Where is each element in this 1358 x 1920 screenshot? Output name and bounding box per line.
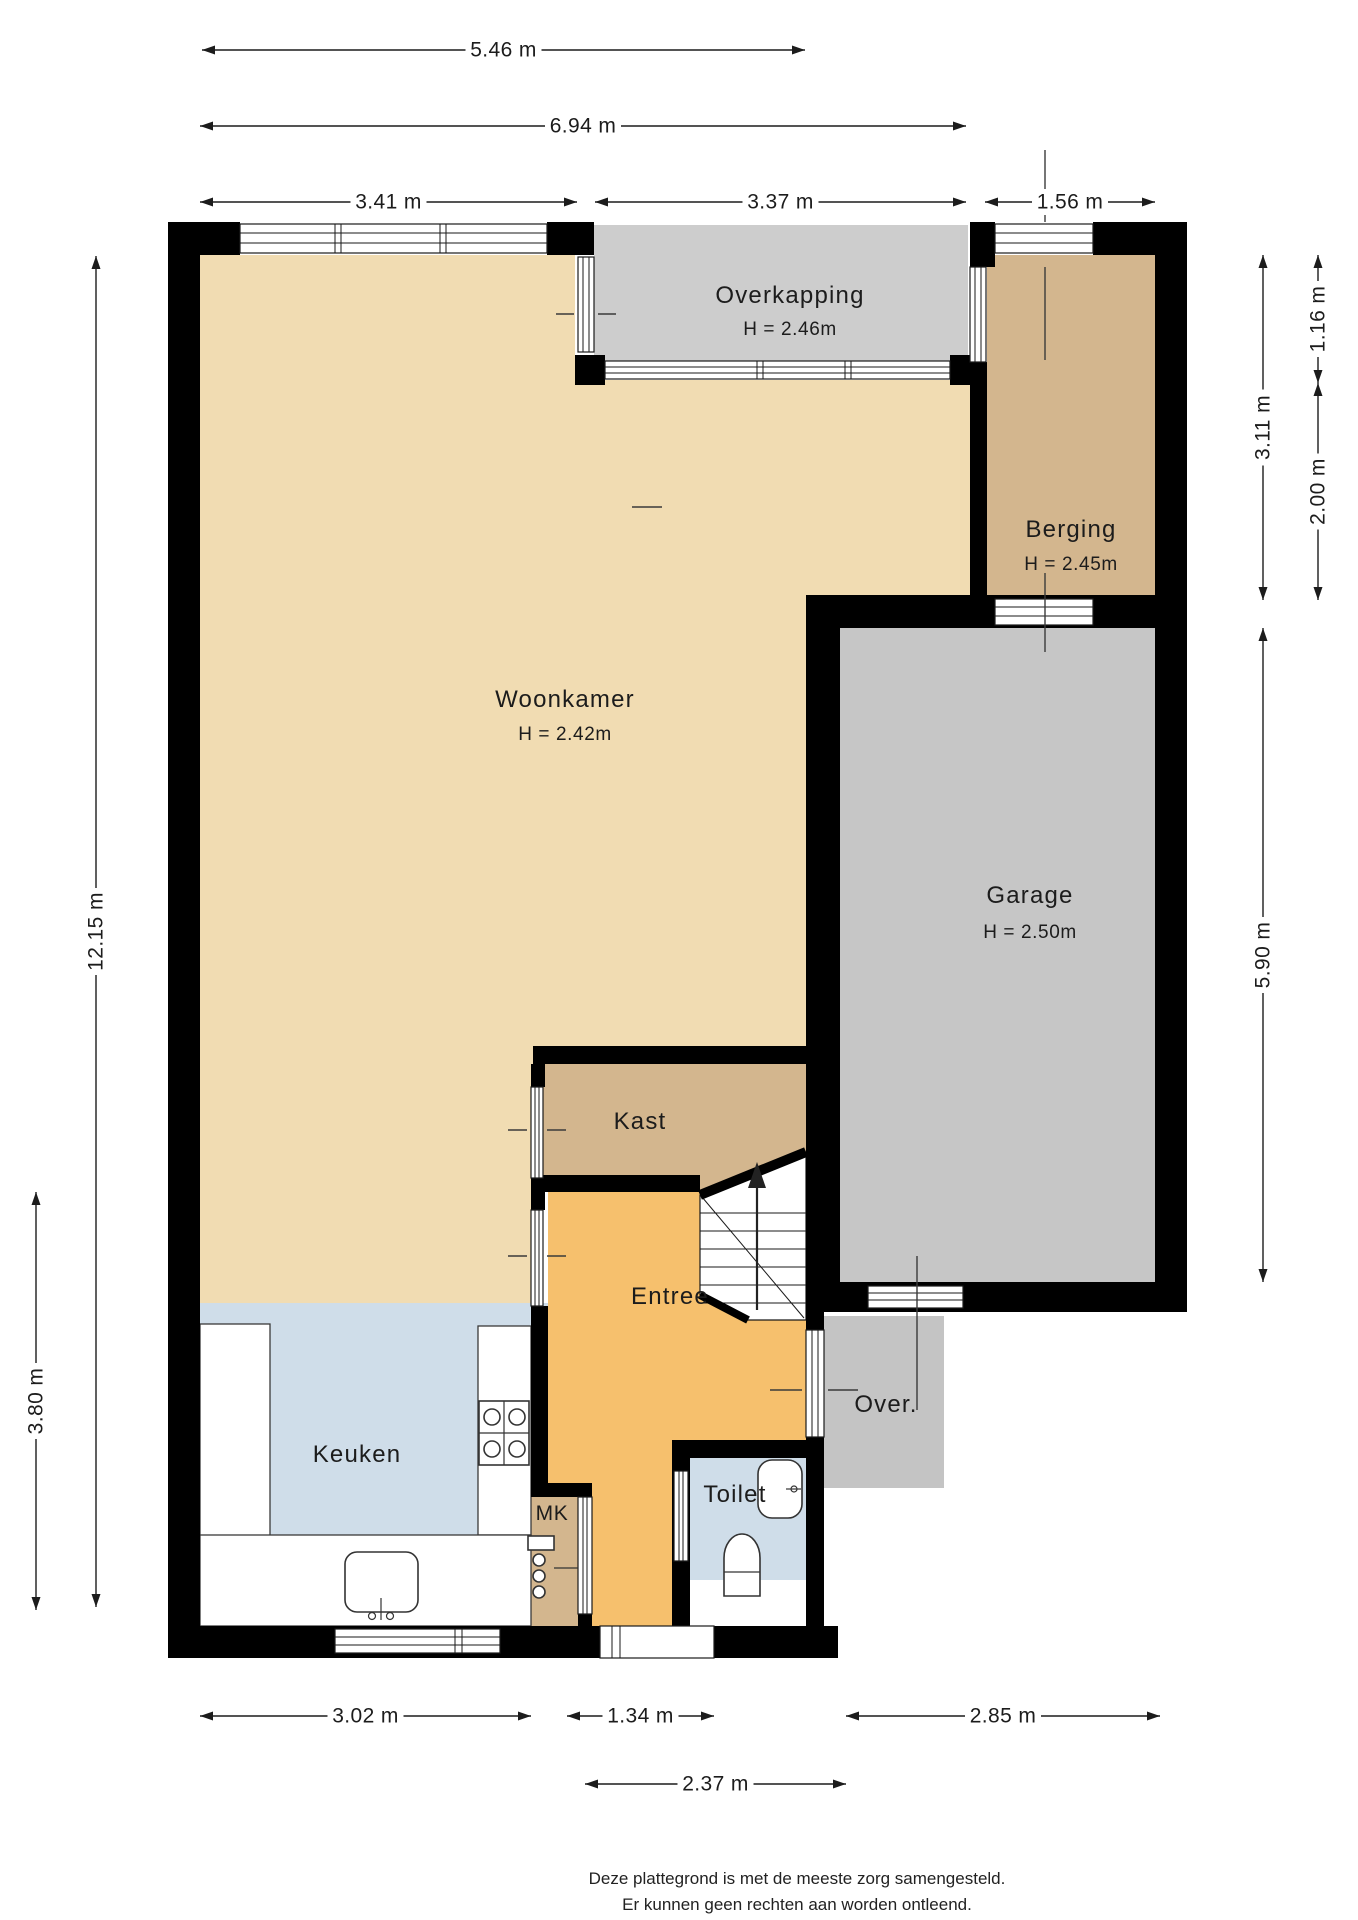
room-berging-floor [987,255,1155,600]
dimension-2.00-m: 2.00 m [1305,383,1331,600]
dimension-label: 3.41 m [355,191,422,214]
dimension-5.90-m: 5.90 m [1250,628,1276,1282]
dimension-label: 12.15 m [85,892,108,971]
dimension-3.80-m: 3.80 m [23,1192,49,1610]
room-garage-floor [840,628,1155,1282]
dimension-label: 2.85 m [970,1705,1037,1728]
room-label-kast: Kast [614,1108,667,1135]
door-garage-bottom [868,1286,963,1308]
room-label-overkapping: Overkapping [715,282,864,309]
dimension-label: 1.16 m [1307,286,1330,353]
window-entree [531,1210,543,1306]
dimension-1.34-m: 1.34 m [567,1703,714,1729]
dimension-2.85-m: 2.85 m [846,1703,1160,1729]
room-height-woonkamer: H = 2.42m [518,724,612,745]
room-label-entree: Entree [631,1283,709,1310]
stove-icon [479,1401,529,1465]
room-label-woonkamer: Woonkamer [495,686,635,713]
dimension-5.46-m: 5.46 m [202,37,805,63]
floorplan-svg: Woonkamer H = 2.42m Overkapping H = 2.46… [0,0,1358,1920]
window-overkapping-bottom [605,361,950,379]
dimension-12.15-m: 12.15 m [83,256,109,1607]
door-toilet [674,1471,688,1561]
footer-line-2: Er kunnen geen rechten aan worden ontlee… [622,1895,972,1914]
room-label-over: Over. [854,1391,917,1418]
dimension-3.41-m: 3.41 m [200,189,577,215]
dimension-6.94-m: 6.94 m [200,113,966,139]
window-berging-top [995,224,1093,253]
window-kast [531,1087,543,1178]
dimension-3.02-m: 3.02 m [200,1703,531,1729]
door-front [600,1626,714,1658]
window-keuken-bottom [335,1629,500,1653]
dimension-label: 2.00 m [1307,458,1330,525]
dimension-label: 3.37 m [747,191,814,214]
room-label-garage: Garage [986,882,1073,909]
door-berging-garage [995,599,1093,625]
floorplan-page: Woonkamer H = 2.42m Overkapping H = 2.46… [0,0,1358,1920]
dimension-label: 2.37 m [682,1773,749,1796]
dimension-label: 3.80 m [25,1368,48,1435]
dimension-1.16-m: 1.16 m [1305,255,1331,383]
room-height-garage: H = 2.50m [983,922,1077,943]
dimension-label: 3.11 m [1252,395,1275,460]
window-overkapping-right [970,267,986,362]
toilet-icon [724,1534,760,1596]
room-height-overkapping: H = 2.46m [743,319,837,340]
room-label-keuken: Keuken [313,1441,402,1468]
dimension-3.37-m: 3.37 m [595,189,966,215]
dimension-3.11-m: 3.11 m [1250,255,1276,600]
footer: Deze plattegrond is met de meeste zorg s… [589,1869,1006,1914]
room-label-berging: Berging [1025,516,1116,543]
dimension-1.56-m: 1.56 m [985,189,1155,215]
door-entree-side [806,1330,824,1437]
window-woonkamer-top [240,224,547,253]
dimension-label: 5.90 m [1252,922,1275,989]
room-label-toilet: Toilet [703,1481,766,1508]
dimension-label: 5.46 m [470,39,537,62]
dimension-label: 1.34 m [607,1705,674,1728]
room-label-mk: MK [536,1502,569,1525]
dimension-2.37-m: 2.37 m [585,1771,846,1797]
door-mk [578,1497,592,1614]
dimension-label: 1.56 m [1037,191,1104,214]
sink-icon [345,1552,418,1620]
room-height-berging: H = 2.45m [1024,554,1118,575]
dimension-label: 3.02 m [332,1705,399,1728]
dimension-label: 6.94 m [550,115,617,138]
footer-line-1: Deze plattegrond is met de meeste zorg s… [589,1869,1006,1888]
door-woonkamer-overkapping [578,257,594,352]
